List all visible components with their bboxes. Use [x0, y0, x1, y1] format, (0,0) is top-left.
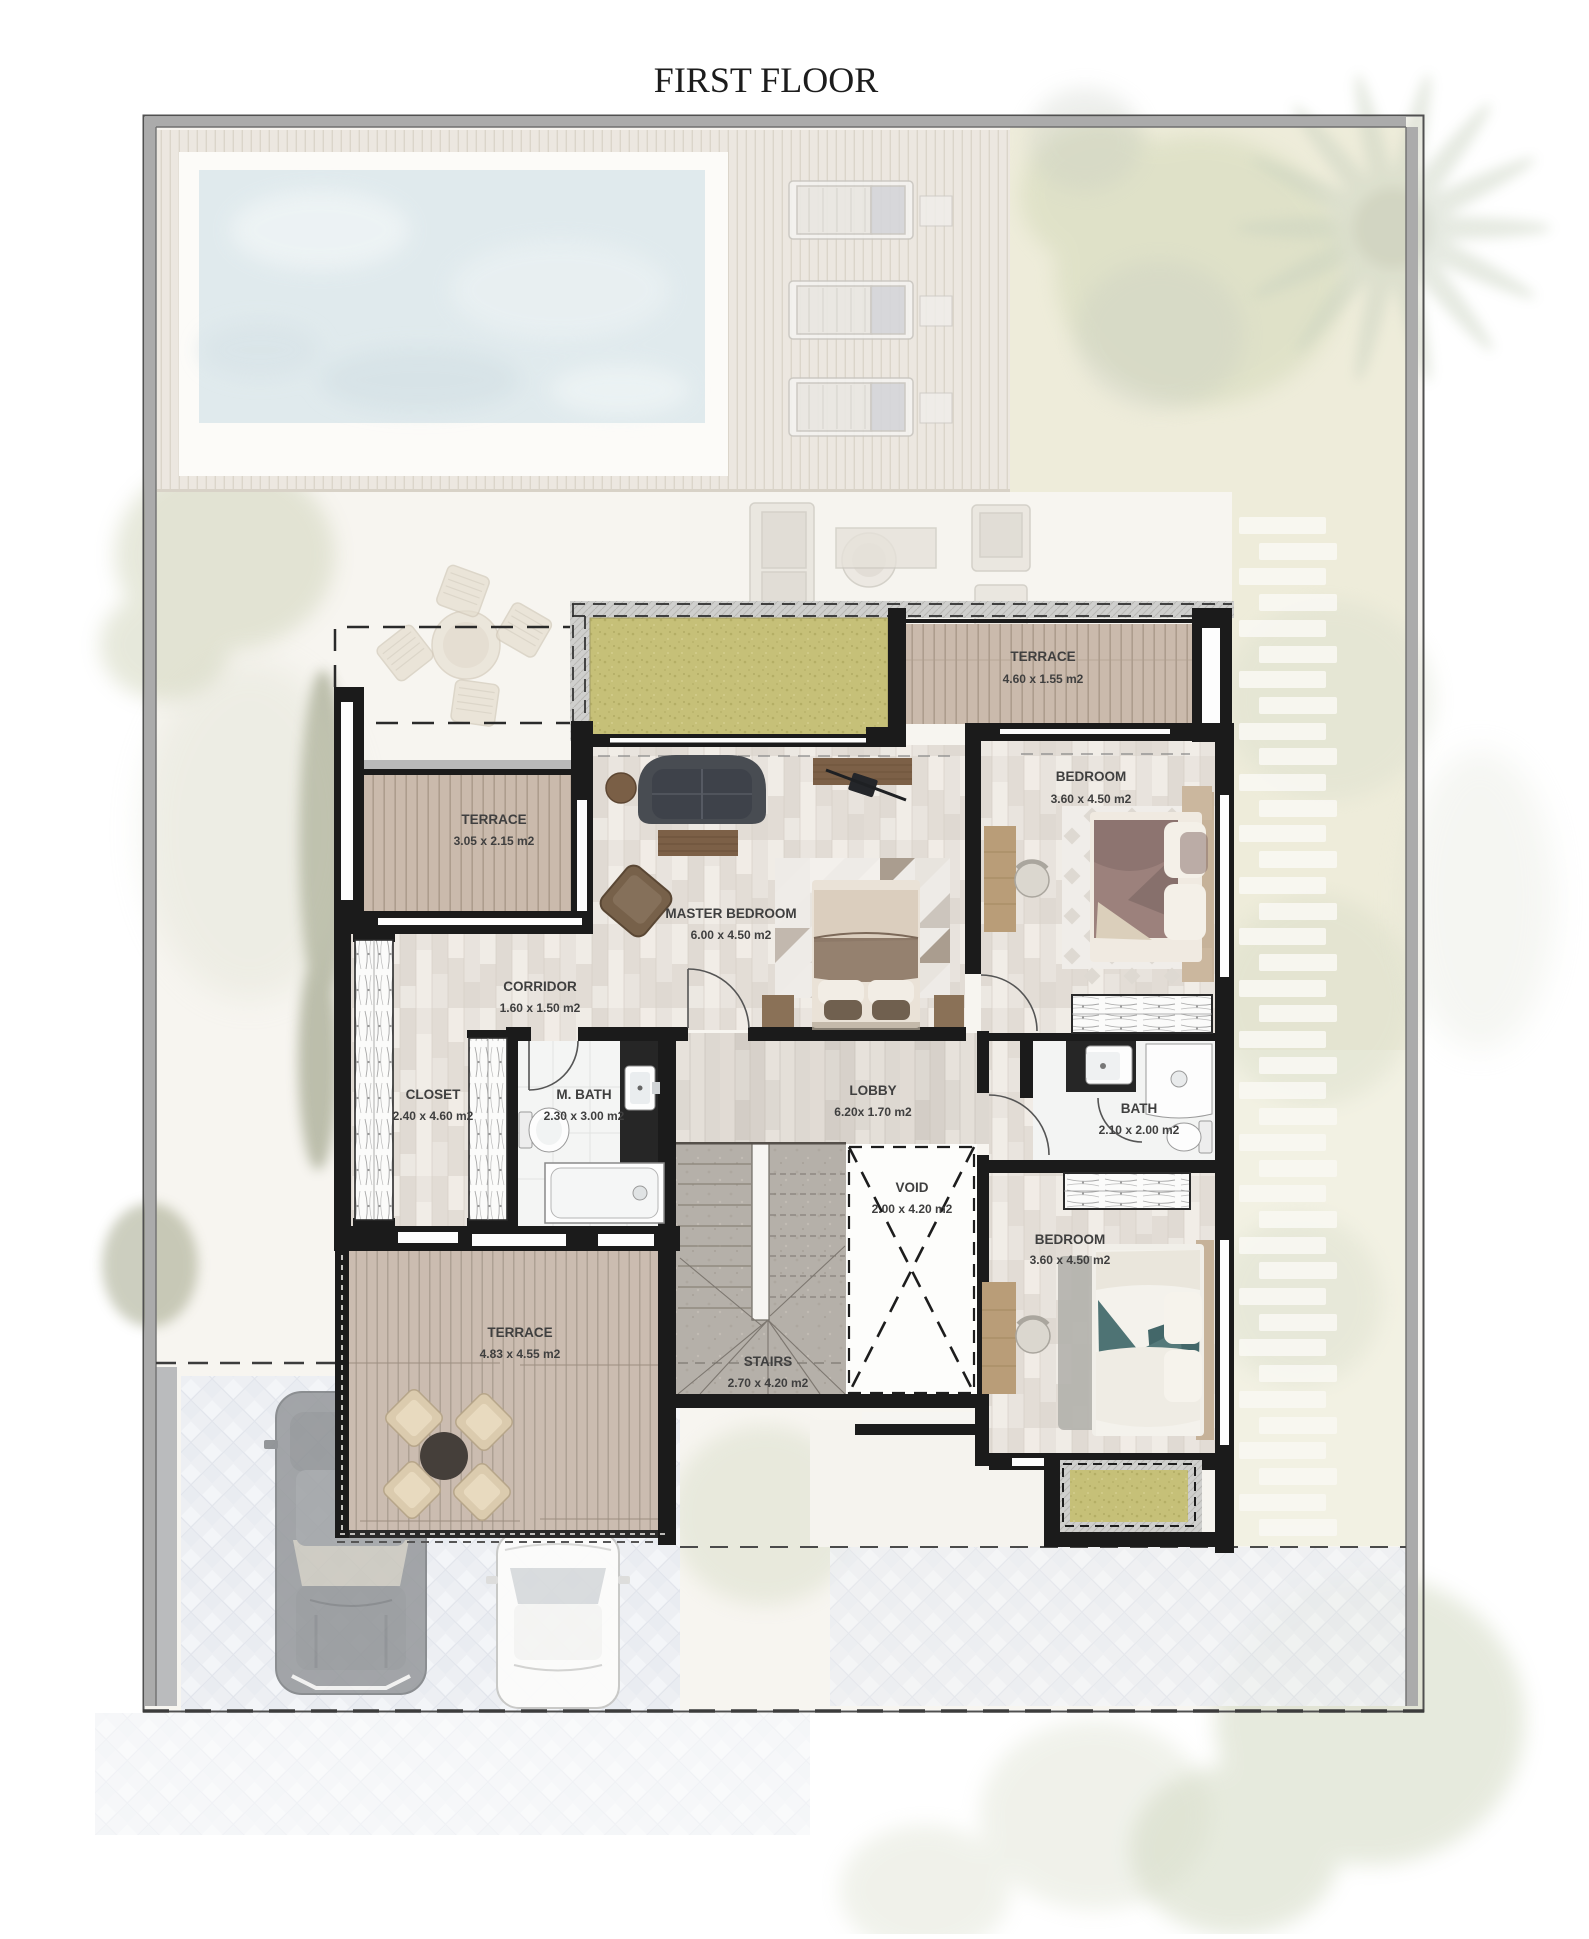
svg-text:2.70 x 4.20 m2: 2.70 x 4.20 m2: [728, 1376, 809, 1390]
svg-text:BEDROOM: BEDROOM: [1035, 1232, 1106, 1247]
svg-text:3.60 x 4.50 m2: 3.60 x 4.50 m2: [1051, 792, 1132, 806]
svg-text:2.00 x 4.20 m2: 2.00 x 4.20 m2: [872, 1202, 953, 1216]
svg-text:2.30 x 3.00 m2: 2.30 x 3.00 m2: [544, 1109, 625, 1123]
svg-text:CLOSET: CLOSET: [406, 1087, 462, 1102]
svg-text:BEDROOM: BEDROOM: [1056, 769, 1127, 784]
svg-text:TERRACE: TERRACE: [461, 812, 526, 827]
svg-text:2.40 x 4.60 m2: 2.40 x 4.60 m2: [393, 1109, 474, 1123]
svg-text:6.00 x 4.50 m2: 6.00 x 4.50 m2: [691, 928, 772, 942]
svg-text:4.60 x 1.55 m2: 4.60 x 1.55 m2: [1003, 672, 1084, 686]
svg-text:TERRACE: TERRACE: [1010, 649, 1075, 664]
svg-text:1.60 x 1.50 m2: 1.60 x 1.50 m2: [500, 1001, 581, 1015]
svg-text:TERRACE: TERRACE: [487, 1325, 552, 1340]
svg-text:FIRST FLOOR: FIRST FLOOR: [654, 60, 878, 100]
svg-text:M. BATH: M. BATH: [556, 1087, 611, 1102]
svg-text:2.10 x 2.00 m2: 2.10 x 2.00 m2: [1099, 1123, 1180, 1137]
svg-text:VOID: VOID: [895, 1180, 928, 1195]
svg-text:BATH: BATH: [1121, 1101, 1158, 1116]
svg-text:LOBBY: LOBBY: [849, 1083, 896, 1098]
svg-text:4.83 x 4.55 m2: 4.83 x 4.55 m2: [480, 1347, 561, 1361]
svg-text:STAIRS: STAIRS: [744, 1354, 793, 1369]
svg-text:CORRIDOR: CORRIDOR: [503, 979, 577, 994]
svg-text:3.05 x 2.15 m2: 3.05 x 2.15 m2: [454, 834, 535, 848]
svg-text:6.20x 1.70 m2: 6.20x 1.70 m2: [834, 1105, 912, 1119]
svg-text:3.60 x 4.50 m2: 3.60 x 4.50 m2: [1030, 1253, 1111, 1267]
svg-text:MASTER BEDROOM: MASTER BEDROOM: [665, 906, 796, 921]
